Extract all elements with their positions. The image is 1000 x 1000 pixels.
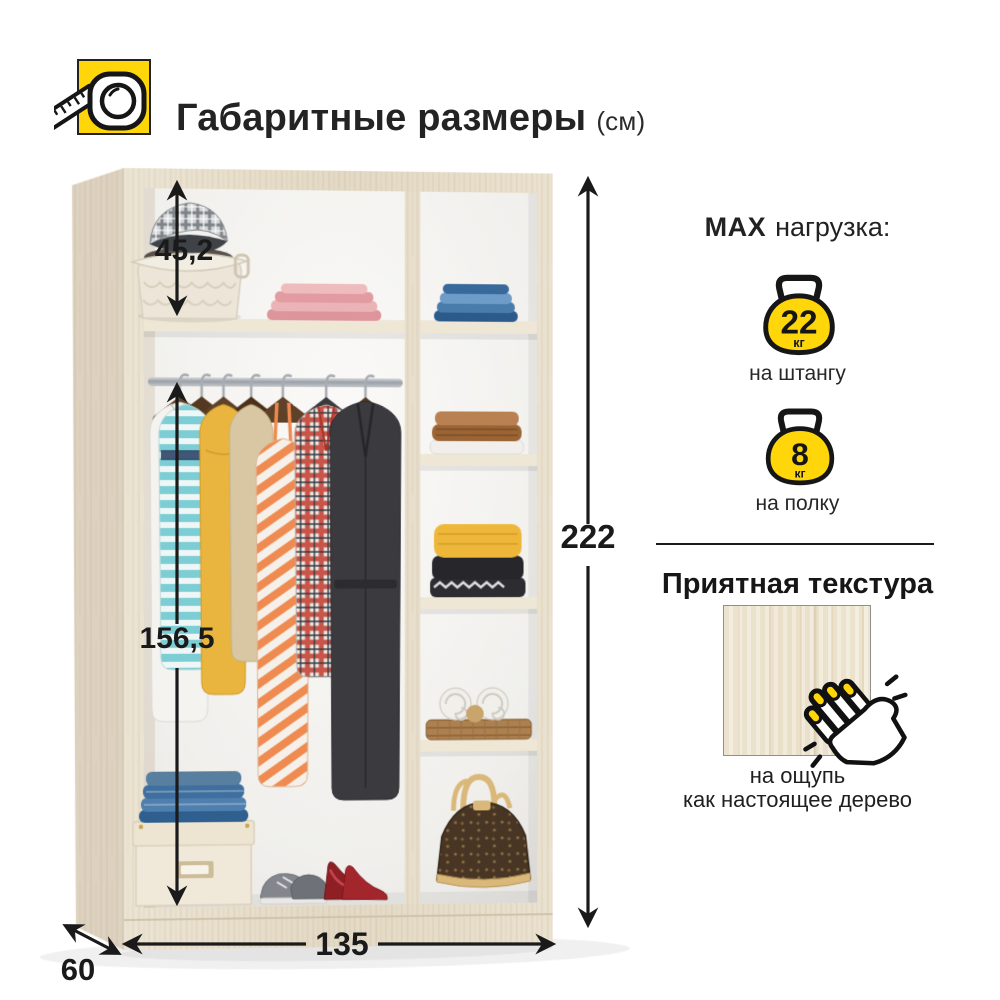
page-title-text: Габаритные размеры (176, 97, 586, 139)
right-shelf-3-shadow (420, 751, 537, 757)
storage-box (133, 821, 254, 906)
texture-caption-line2: как настоящее дерево (640, 788, 955, 812)
side-panel-grain (72, 167, 124, 951)
page-title: Габаритные размеры(см) (176, 97, 645, 140)
folded-jeans-stack (139, 771, 248, 823)
texture-caption: на ощупь как настоящее дерево (640, 764, 955, 812)
max-load-suffix: нагрузка: (775, 212, 890, 242)
wardrobe-illustration (40, 149, 649, 1000)
garment-dark-coat (330, 401, 401, 800)
texture-heading: Приятная текстура (640, 568, 955, 601)
partition-grain (405, 191, 421, 904)
right-shelf-3 (420, 739, 537, 752)
load-unit: кг (793, 336, 805, 350)
product-infographic: Габаритные размеры(см) (0, 0, 1000, 1000)
right-shelf-1-shadow (420, 466, 537, 471)
max-load-prefix: MAX (705, 212, 767, 242)
max-load-heading: MAXнагрузка: (640, 212, 955, 243)
folded-pink-clothes (267, 283, 381, 321)
page-title-unit: (см) (596, 106, 645, 136)
storage-basket (132, 247, 248, 323)
measuring-tape-icon (54, 50, 158, 142)
wardrobe-drawing (40, 149, 649, 1000)
right-shelf-1 (420, 454, 537, 466)
kettlebell-icon: 8 кг (757, 400, 843, 490)
load-unit: кг (794, 467, 805, 481)
folded-blue-jeans-top (434, 284, 518, 322)
folded-towels (430, 411, 523, 454)
right-shelf-2-shadow (420, 609, 537, 614)
right-shelf-2 (420, 597, 537, 609)
load-label-shelf: на полку (640, 492, 955, 516)
divider (656, 543, 934, 545)
folded-sweaters (430, 524, 525, 597)
kettlebell-icon: 22 кг (754, 266, 844, 360)
interior-right-shade (528, 193, 537, 903)
texture-caption-line1: на ощупь (640, 764, 955, 788)
load-label-rod: на штангу (640, 362, 955, 386)
